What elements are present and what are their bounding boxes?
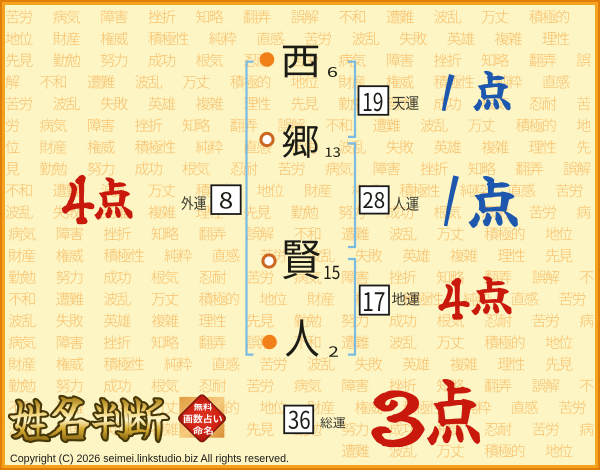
svg-text:Copyright (C) 2026 seimei.link: Copyright (C) 2026 seimei.linkstudio.biz… [10, 453, 289, 465]
